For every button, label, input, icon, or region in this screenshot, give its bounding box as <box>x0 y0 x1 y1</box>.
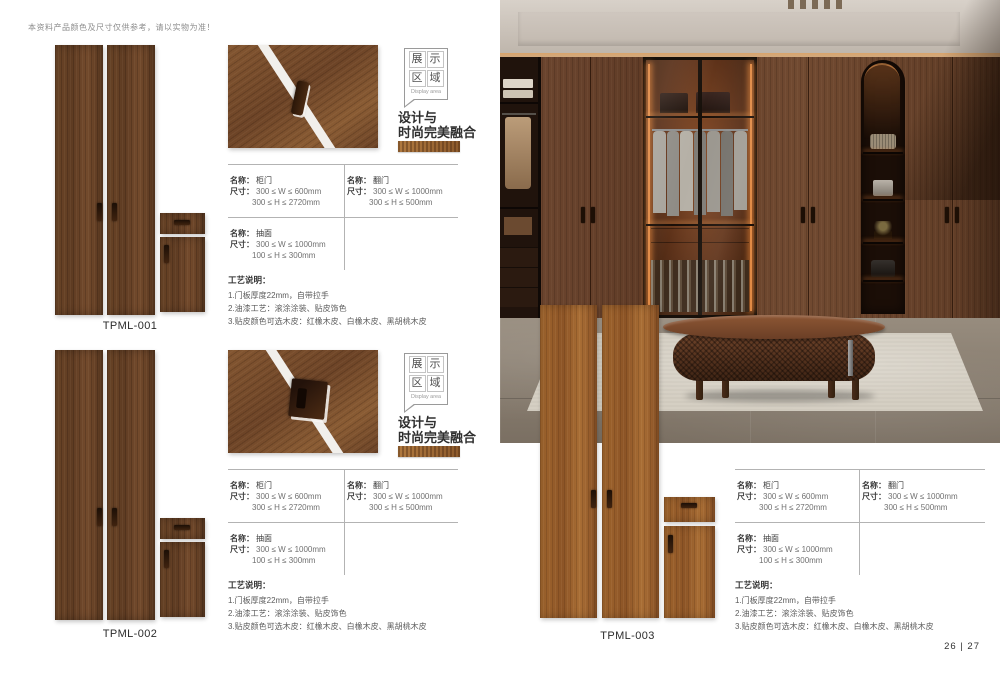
design-tagline: 设计与 时尚完美融合 <box>398 110 508 140</box>
bench-leg <box>722 380 729 398</box>
badge-subtitle: Display area <box>407 394 445 399</box>
tall-door-panel <box>107 350 155 620</box>
tall-door-panel <box>107 45 155 315</box>
drawer-handle <box>681 503 697 508</box>
handbag <box>871 260 895 277</box>
badge-subtitle: Display area <box>407 89 445 94</box>
spec-table: 名称：柜门 尺寸：300 ≤ W ≤ 600mm 300 ≤ H ≤ 2720m… <box>228 164 458 270</box>
drawer-front-panel <box>664 497 715 522</box>
small-door-panel <box>664 526 715 618</box>
craft-notes: 工艺说明： 1.门板厚度22mm，自带拉手 2.油漆工艺：滚涂涂装、贴皮饰色 3… <box>228 579 478 633</box>
craft-notes: 工艺说明： 1.门板厚度22mm，自带拉手 2.油漆工艺：滚涂涂装、贴皮饰色 3… <box>735 579 985 633</box>
shelf <box>863 242 903 244</box>
door-handle <box>112 508 117 526</box>
door-handle <box>801 207 805 223</box>
door-detail-photo <box>228 45 378 148</box>
corner-shadow <box>900 0 1000 200</box>
glass-wardrobe-center <box>643 57 757 318</box>
ceiling-cove <box>518 12 960 46</box>
door-handle <box>811 207 815 223</box>
product-panels-tpml-001: TPML-001 <box>55 45 205 335</box>
tall-door-panel <box>540 305 597 618</box>
bench-leg <box>828 380 835 398</box>
spec-table: 名称：柜门 尺寸：300 ≤ W ≤ 600mm 300 ≤ H ≤ 2720m… <box>735 469 985 575</box>
wood-sample-strip <box>398 446 460 457</box>
arched-display-niche <box>861 60 905 314</box>
small-door-panel <box>160 542 205 617</box>
wood-sample-strip <box>398 141 460 152</box>
shelf <box>863 152 903 154</box>
door-handle <box>97 508 102 526</box>
spec-cell-cabinet-door: 名称：柜门 尺寸：300 ≤ W ≤ 600mm 300 ≤ H ≤ 2720m… <box>228 470 345 523</box>
door-handle <box>668 535 673 553</box>
pendant-lights <box>788 0 846 9</box>
product-code: TPML-001 <box>55 320 205 332</box>
door-gap <box>808 57 809 318</box>
door-handle <box>164 245 169 263</box>
door-gap <box>590 57 591 318</box>
drawer-handle <box>174 525 190 530</box>
spec-cell-empty <box>345 523 458 575</box>
spec-cell-empty <box>860 523 985 575</box>
spec-cell-drawer-face: 名称：抽面 尺寸：300 ≤ W ≤ 1000mm 100 ≤ H ≤ 300m… <box>228 218 345 270</box>
door-handle <box>591 490 596 508</box>
bench-metal-accent <box>848 340 853 376</box>
storage-box <box>504 217 532 235</box>
spec-cell-cabinet-door: 名称：柜门 尺寸：300 ≤ W ≤ 600mm 300 ≤ H ≤ 2720m… <box>228 165 345 218</box>
glass-reflection <box>646 60 754 315</box>
door-handle <box>607 490 612 508</box>
tall-door-panel <box>55 350 103 620</box>
spec-cell-cabinet-door: 名称：柜门 尺寸：300 ≤ W ≤ 600mm 300 ≤ H ≤ 2720m… <box>735 470 860 523</box>
drawer-front-panel <box>160 518 205 539</box>
product-panels-tpml-002: TPML-002 <box>55 350 205 642</box>
spec-table: 名称：柜门 尺寸：300 ≤ W ≤ 600mm 300 ≤ H ≤ 2720m… <box>228 469 458 575</box>
shelf <box>863 199 903 201</box>
drawer-front-panel <box>160 213 205 234</box>
door-detail-photo <box>228 350 378 453</box>
small-door-panel <box>160 237 205 312</box>
flower-decor <box>874 221 892 239</box>
shelf <box>500 102 538 104</box>
spec-cell-drawer-face: 名称：抽面 尺寸：300 ≤ W ≤ 1000mm 100 ≤ H ≤ 300m… <box>228 523 345 575</box>
display-area-badge: 展示 区域 Display area <box>404 48 448 100</box>
basket <box>870 134 896 149</box>
product-code: TPML-003 <box>540 630 715 642</box>
tall-door-panel <box>602 305 659 618</box>
bench-leg <box>852 378 859 400</box>
disclaimer-text: 本资料产品颜色及尺寸仅供参考，请以实物为准！ <box>28 22 215 33</box>
product-panels-tpml-003: TPML-003 <box>540 305 720 645</box>
recessed-handle-detail <box>288 378 328 420</box>
spec-cell-flip-door: 名称：翻门 尺寸：300 ≤ W ≤ 1000mm 300 ≤ H ≤ 500m… <box>345 470 458 523</box>
door-handle <box>581 207 585 223</box>
door-handle <box>164 550 169 568</box>
spec-cell-flip-door: 名称：翻门 尺寸：300 ≤ W ≤ 1000mm 300 ≤ H ≤ 500m… <box>860 470 985 523</box>
craft-notes: 工艺说明： 1.门板厚度22mm，自带拉手 2.油漆工艺：滚涂涂装、贴皮饰色 3… <box>228 274 478 328</box>
folded-clothes <box>503 90 533 98</box>
tall-door-panel <box>55 45 103 315</box>
drawer-handle <box>174 220 190 225</box>
hanging-clothes <box>505 117 531 189</box>
door-handle <box>591 207 595 223</box>
catalog-spread: 本资料产品颜色及尺寸仅供参考，请以实物为准！ TPML-001 展示 区域 Di… <box>0 0 1000 678</box>
cabinet-drawers <box>500 247 538 307</box>
folded-clothes <box>503 79 533 88</box>
glass-cabinet-left <box>500 57 541 318</box>
door-handle <box>97 203 102 221</box>
page-number: 26 | 27 <box>905 641 980 652</box>
door-handle <box>112 203 117 221</box>
product-code: TPML-002 <box>55 628 205 640</box>
spec-cell-drawer-face: 名称：抽面 尺寸：300 ≤ W ≤ 1000mm 100 ≤ H ≤ 300m… <box>735 523 860 575</box>
door-handle <box>945 207 949 223</box>
display-area-badge: 展示 区域 Display area <box>404 353 448 405</box>
clothes-rod <box>502 113 536 115</box>
spec-cell-flip-door: 名称：翻门 尺寸：300 ≤ W ≤ 1000mm 300 ≤ H ≤ 500m… <box>345 165 458 218</box>
spec-cell-empty <box>345 218 458 270</box>
design-tagline: 设计与 时尚完美融合 <box>398 415 508 445</box>
shelf <box>863 280 903 282</box>
shelf <box>500 207 538 209</box>
decor-object <box>873 180 893 196</box>
